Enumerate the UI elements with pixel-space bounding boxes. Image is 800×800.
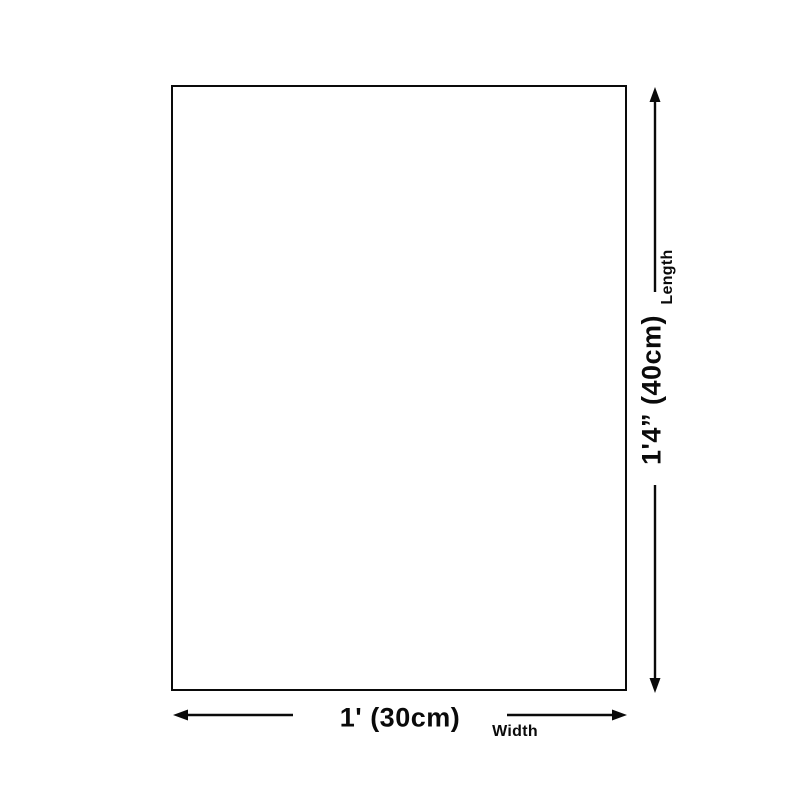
- length-axis-label: Length: [659, 249, 677, 304]
- width-value-label: 1' (30cm): [340, 703, 460, 734]
- width-arrow-left-icon: [173, 710, 293, 721]
- length-value-label: 1'4” (40cm): [637, 315, 668, 465]
- size-diagram: 1'4” (40cm) Length 1' (30cm) Width: [0, 0, 800, 800]
- product-outline-rectangle: [171, 85, 627, 691]
- width-axis-label: Width: [492, 723, 538, 741]
- length-arrow-down-icon: [650, 485, 661, 693]
- width-arrow-right-icon: [507, 710, 627, 721]
